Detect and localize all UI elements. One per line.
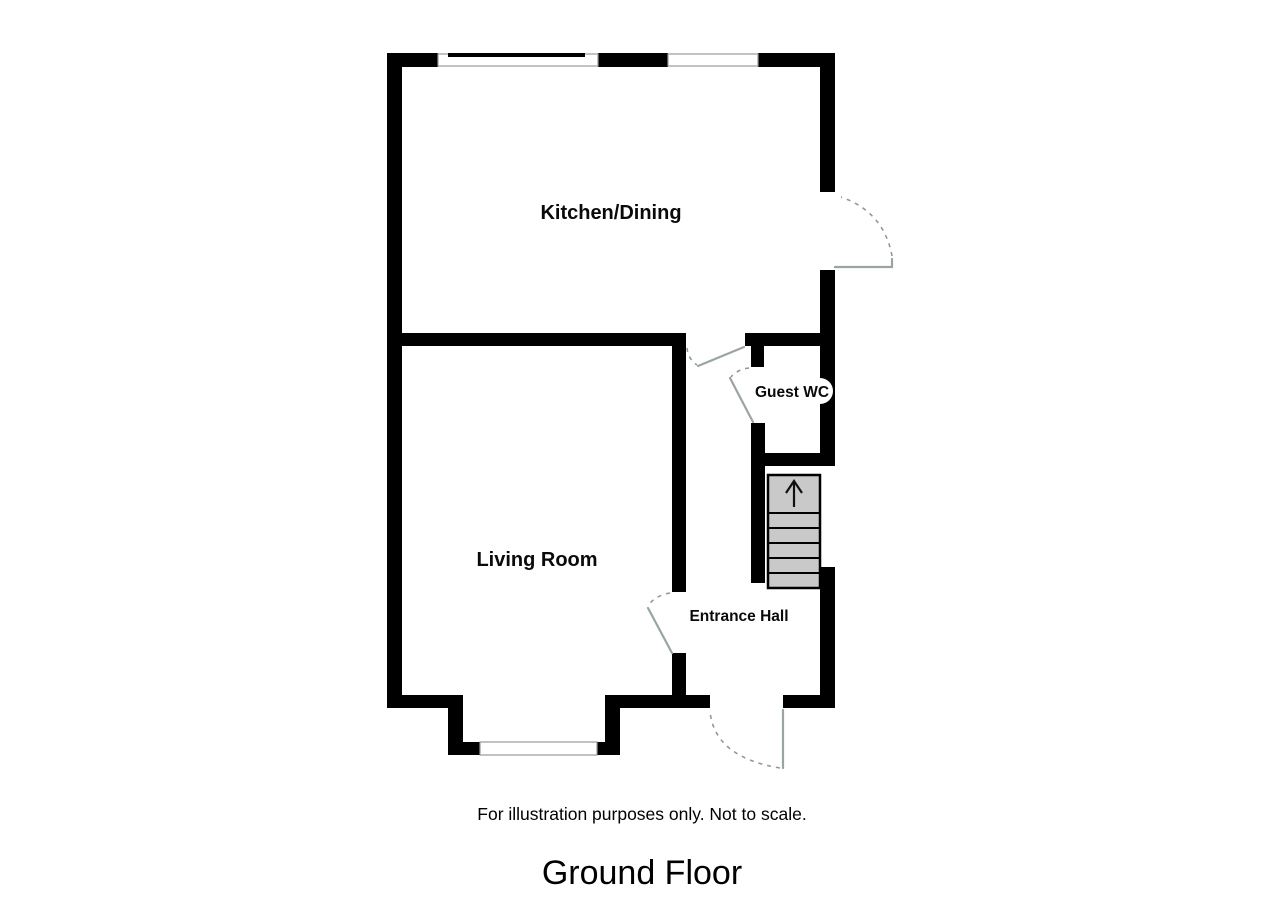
floorplan-drawing: Kitchen/Dining Living Room Guest WC Entr… (0, 0, 1280, 905)
guest-wc-door (730, 368, 753, 422)
wall-right-middle (820, 270, 835, 466)
wall-interior-living-hall-upper (672, 333, 686, 592)
wall-wc-left-lower-stairs (751, 423, 765, 583)
captions: For illustration purposes only. Not to s… (477, 804, 806, 892)
staircase (768, 475, 820, 588)
living-room-door (648, 593, 672, 653)
wall-right-kitchen (820, 53, 835, 192)
wall-wc-bottom (751, 453, 834, 466)
floorplan-canvas: Kitchen/Dining Living Room Guest WC Entr… (0, 0, 1280, 905)
walls (387, 53, 835, 755)
kitchen-window-right (668, 54, 758, 66)
wall-left-exterior (387, 53, 402, 708)
wall-wc-left-upper (751, 346, 764, 367)
wall-top-segment-left (387, 53, 438, 67)
kitchen-window-left-sill (448, 53, 585, 57)
guest-wc-label: Guest WC (755, 384, 829, 401)
disclaimer-text: For illustration purposes only. Not to s… (477, 804, 806, 824)
living-room-label: Living Room (476, 549, 597, 571)
front-entrance-door (710, 710, 783, 768)
entrance-hall-label: Entrance Hall (689, 608, 788, 625)
wall-wc-top (745, 333, 834, 346)
wall-right-hall (820, 567, 835, 708)
living-bay-window (480, 742, 597, 755)
floor-title: Ground Floor (542, 854, 742, 892)
wall-bottom-right (783, 695, 835, 708)
kitchen-hall-door (687, 347, 744, 366)
wall-divider-kitchen-living (387, 333, 686, 346)
kitchen-exterior-door (835, 197, 892, 267)
wall-top-segment-middle (598, 53, 668, 67)
windows (438, 53, 758, 755)
kitchen-dining-label: Kitchen/Dining (540, 202, 681, 224)
wall-bottom-middle (605, 695, 710, 708)
